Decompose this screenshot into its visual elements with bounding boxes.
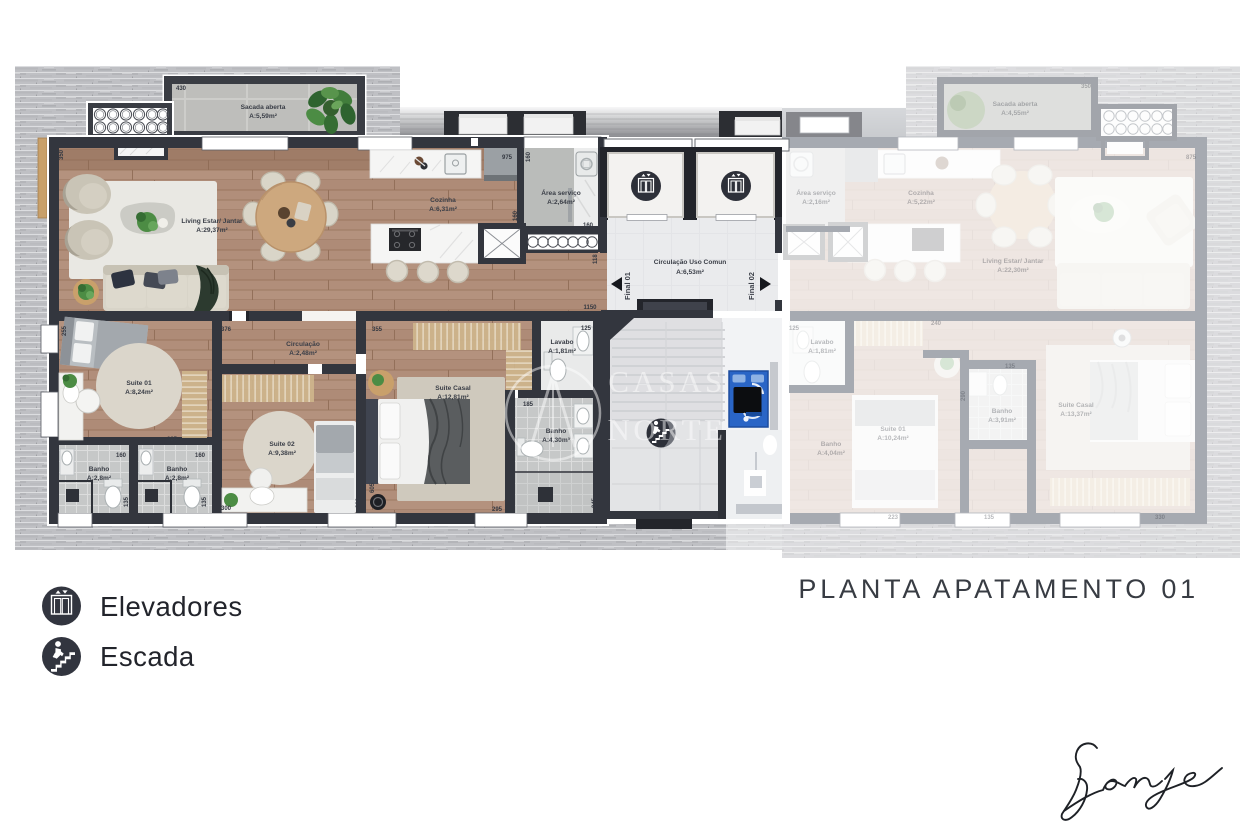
svg-text:A:6,53m²: A:6,53m² — [676, 269, 705, 276]
svg-text:A:5,59m²: A:5,59m² — [249, 113, 278, 120]
svg-text:330: 330 — [1155, 515, 1166, 521]
svg-text:125: 125 — [581, 326, 592, 332]
svg-text:A:1,81m²: A:1,81m² — [808, 348, 837, 355]
svg-text:135: 135 — [124, 496, 130, 507]
svg-text:NORTE: NORTE — [608, 412, 727, 447]
svg-text:A:2,8m²: A:2,8m² — [165, 475, 190, 482]
svg-text:A:4,04m²: A:4,04m² — [817, 450, 846, 457]
svg-text:Living Estar/ Jantar: Living Estar/ Jantar — [181, 218, 243, 225]
svg-text:875: 875 — [1186, 155, 1197, 161]
svg-text:Final 02: Final 02 — [747, 272, 756, 300]
svg-text:160: 160 — [195, 453, 206, 459]
svg-text:350: 350 — [59, 149, 65, 160]
svg-text:290: 290 — [961, 390, 967, 401]
svg-text:325: 325 — [167, 437, 178, 443]
svg-text:A:2,48m²: A:2,48m² — [289, 350, 318, 357]
svg-text:255: 255 — [62, 325, 68, 336]
svg-text:Final 01: Final 01 — [623, 272, 632, 300]
svg-text:160: 160 — [583, 223, 594, 229]
svg-text:Área serviço: Área serviço — [541, 188, 581, 197]
svg-text:A:6,31m²: A:6,31m² — [429, 206, 458, 213]
svg-text:A:4,55m²: A:4,55m² — [1001, 110, 1030, 117]
svg-text:Área serviço: Área serviço — [796, 188, 836, 197]
svg-text:A:4,30m³: A:4,30m³ — [542, 437, 571, 444]
svg-text:Banho: Banho — [89, 466, 110, 473]
svg-text:Sacada aberta: Sacada aberta — [241, 104, 286, 111]
svg-text:135: 135 — [1005, 364, 1016, 370]
svg-text:A:2,8m²: A:2,8m² — [87, 475, 112, 482]
svg-text:1150: 1150 — [583, 305, 597, 311]
svg-text:Suite Casal: Suite Casal — [1058, 402, 1094, 409]
svg-text:Lavabo: Lavabo — [810, 339, 833, 346]
svg-text:Sacada aberta: Sacada aberta — [993, 101, 1038, 108]
svg-text:295: 295 — [492, 507, 503, 513]
svg-text:Lavabo: Lavabo — [550, 339, 573, 346]
svg-text:605: 605 — [370, 482, 376, 493]
svg-text:A:1,81m²: A:1,81m² — [548, 348, 577, 355]
svg-text:PLANTA APATAMENTO 01: PLANTA APATAMENTO 01 — [798, 574, 1199, 604]
svg-text:Suite Casal: Suite Casal — [435, 385, 471, 392]
svg-text:Banho: Banho — [992, 408, 1013, 415]
svg-text:Cozinha: Cozinha — [908, 190, 934, 197]
svg-text:135: 135 — [202, 496, 208, 507]
svg-text:A:5,22m²: A:5,22m² — [907, 199, 936, 206]
svg-text:223: 223 — [888, 515, 899, 521]
svg-text:Escada: Escada — [100, 641, 195, 672]
svg-text:430: 430 — [176, 86, 187, 92]
svg-text:290: 290 — [356, 497, 362, 508]
svg-text:Living Estar/ Jantar: Living Estar/ Jantar — [982, 258, 1044, 265]
svg-text:Circulação: Circulação — [286, 341, 320, 348]
svg-text:Suite 02: Suite 02 — [269, 441, 295, 448]
svg-text:125: 125 — [789, 326, 800, 332]
svg-text:240: 240 — [931, 321, 942, 327]
svg-text:Elevadores: Elevadores — [100, 591, 243, 622]
svg-text:A:2,64m²: A:2,64m² — [547, 199, 576, 206]
svg-text:Suite 01: Suite 01 — [126, 380, 152, 387]
svg-text:300: 300 — [221, 506, 232, 512]
svg-text:A:12,81m²: A:12,81m² — [437, 394, 469, 401]
svg-text:Suite 01: Suite 01 — [880, 426, 906, 433]
svg-text:Cozinha: Cozinha — [430, 197, 456, 204]
svg-text:160: 160 — [526, 151, 532, 162]
svg-text:975: 975 — [502, 155, 513, 161]
svg-text:A:22,30m²: A:22,30m² — [997, 267, 1029, 274]
svg-text:A:2,16m²: A:2,16m² — [802, 199, 831, 206]
svg-text:Banho: Banho — [167, 466, 188, 473]
svg-text:A:9,38m²: A:9,38m² — [268, 450, 297, 457]
svg-text:185: 185 — [523, 402, 534, 408]
svg-text:135: 135 — [984, 515, 995, 521]
svg-text:A:3,91m²: A:3,91m² — [988, 417, 1017, 424]
svg-text:355: 355 — [372, 327, 383, 333]
svg-text:Circulação Uso Comun: Circulação Uso Comun — [654, 259, 727, 266]
svg-text:A:13,37m²: A:13,37m² — [1060, 411, 1092, 418]
svg-text:245: 245 — [592, 497, 598, 508]
svg-text:A:29,37m²: A:29,37m² — [196, 227, 228, 234]
svg-text:A:10,24m²: A:10,24m² — [877, 435, 909, 442]
svg-text:160: 160 — [116, 453, 127, 459]
svg-text:376: 376 — [221, 327, 232, 333]
svg-text:350: 350 — [1081, 84, 1092, 90]
svg-text:Banho: Banho — [821, 441, 842, 448]
svg-text:118: 118 — [593, 254, 599, 264]
svg-text:A:8,24m²: A:8,24m² — [125, 389, 154, 396]
svg-text:Banho: Banho — [546, 428, 567, 435]
svg-text:CASAS: CASAS — [608, 364, 725, 399]
svg-text:160: 160 — [513, 210, 519, 221]
